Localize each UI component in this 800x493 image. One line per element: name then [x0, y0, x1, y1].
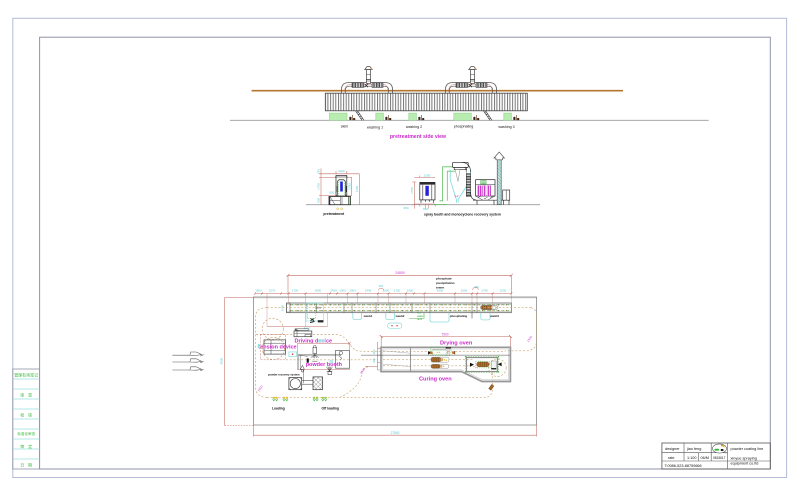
svg-text:powder coating line: powder coating line	[731, 447, 764, 451]
svg-text:250: 250	[474, 285, 479, 289]
svg-text:2200: 2200	[424, 173, 431, 177]
svg-text:1000: 1000	[339, 288, 346, 292]
svg-text:1500: 1500	[461, 288, 468, 292]
svg-text:washing 2: washing 2	[406, 125, 422, 129]
svg-text:tension device: tension device	[258, 344, 296, 350]
svg-text:750: 750	[317, 169, 321, 174]
svg-text:1750: 1750	[317, 183, 321, 190]
svg-text:1:100: 1:100	[687, 456, 697, 460]
svg-text:powder recovery system: powder recovery system	[268, 373, 300, 377]
svg-text:日 期: 日 期	[20, 461, 32, 467]
svg-text:2450: 2450	[330, 288, 337, 292]
svg-text:washing 3: washing 3	[498, 125, 514, 129]
svg-text:wash2: wash2	[395, 314, 405, 318]
svg-text:24850: 24850	[395, 271, 405, 275]
svg-text:phosphating: phosphating	[454, 125, 474, 129]
svg-text:1500: 1500	[407, 288, 414, 292]
svg-text:wash1: wash1	[363, 314, 373, 318]
svg-text:650: 650	[423, 207, 428, 211]
svg-text:1750: 1750	[394, 288, 401, 292]
svg-text:1750: 1750	[348, 183, 352, 190]
svg-text:pretreatment: pretreatment	[323, 212, 345, 216]
svg-text:1700: 1700	[292, 288, 299, 292]
svg-text:xinyue spraying: xinyue spraying	[731, 457, 757, 461]
svg-text:1100: 1100	[338, 169, 345, 173]
svg-text:T:0086-523-88759666: T:0086-523-88759666	[665, 464, 702, 468]
svg-text:1445: 1445	[365, 288, 372, 292]
svg-text:审 签: 审 签	[20, 392, 32, 398]
svg-text:2200: 2200	[500, 288, 507, 292]
svg-text:hot: hot	[417, 310, 421, 314]
svg-text:Loading: Loading	[272, 406, 285, 410]
svg-text:850: 850	[317, 197, 321, 202]
svg-text:rate: rate	[668, 456, 675, 460]
svg-text:3150: 3150	[355, 185, 359, 192]
svg-text:Curing oven: Curing oven	[419, 377, 452, 383]
svg-text:designer: designer	[665, 447, 680, 451]
svg-text:Drying oven: Drying oven	[440, 341, 473, 347]
svg-text:precipitation: precipitation	[436, 281, 455, 285]
svg-text:管理有场签记: 管理有场签记	[14, 372, 38, 378]
svg-text:1000: 1000	[349, 288, 356, 292]
svg-text:spray booth and monocyclone re: spray booth and monocyclone recovery sys…	[424, 213, 501, 217]
svg-text:equipment co.ltd: equipment co.ltd	[731, 462, 759, 466]
svg-text:washing 1: washing 1	[367, 126, 383, 130]
svg-text:pretreatment side view: pretreatment side view	[390, 134, 447, 140]
svg-text:0815617: 0815617	[713, 456, 726, 460]
svg-text:Off loading: Off loading	[322, 406, 339, 410]
svg-text:1500: 1500	[255, 288, 262, 292]
svg-text:06/M: 06/M	[701, 456, 709, 460]
svg-text:审 定: 审 定	[20, 443, 32, 449]
svg-text:900: 900	[372, 358, 376, 363]
svg-text:27500: 27500	[391, 431, 400, 435]
svg-text:标准化审查: 标准化审查	[17, 431, 35, 436]
svg-text:tank: tank	[417, 317, 423, 321]
svg-text:950: 950	[329, 190, 334, 194]
svg-text:1750: 1750	[410, 187, 414, 194]
svg-text:950: 950	[403, 206, 408, 210]
svg-text:8000: 8000	[220, 357, 224, 364]
svg-text:phosphate: phosphate	[436, 277, 452, 281]
svg-text:skim: skim	[341, 125, 348, 129]
svg-text:1745: 1745	[481, 288, 488, 292]
svg-text:phosphating: phosphating	[450, 314, 468, 318]
svg-text:650: 650	[379, 284, 384, 288]
svg-text:jiao feng: jiao feng	[686, 447, 701, 451]
svg-text:wash3: wash3	[489, 314, 499, 318]
svg-text:tower: tower	[436, 285, 445, 289]
svg-text:2270: 2270	[269, 288, 276, 292]
svg-text:water: water	[417, 314, 424, 318]
svg-text:powder booth: powder booth	[306, 362, 343, 368]
svg-text:3000: 3000	[315, 288, 322, 292]
svg-text:校 核: 校 核	[20, 412, 32, 418]
svg-text:900: 900	[372, 349, 376, 354]
svg-text:7500: 7500	[441, 333, 448, 337]
